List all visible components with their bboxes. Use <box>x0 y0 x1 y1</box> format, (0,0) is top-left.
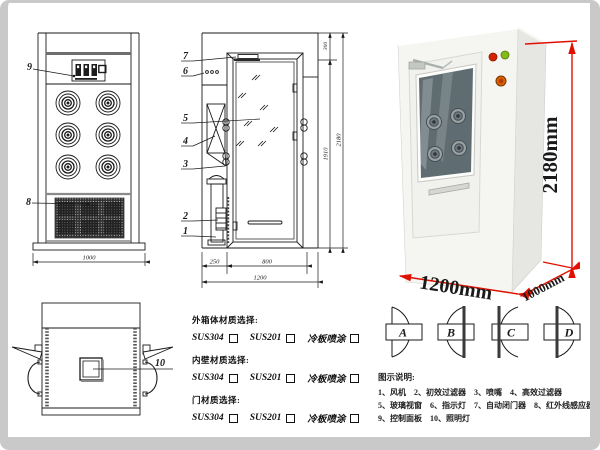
callout-7-label: 7 <box>183 51 189 62</box>
front-view-drawing: 1000 9 8 <box>22 26 177 276</box>
checkbox[interactable] <box>286 334 295 343</box>
parts-legend-title: 图示说明: <box>378 371 590 383</box>
legend-item: 5、玻璃视窗 <box>378 399 422 412</box>
material-option-label: SUS304 <box>192 413 224 423</box>
door-config-legend: A B C D <box>382 303 582 361</box>
indicator-light-red <box>489 53 497 61</box>
glass-hatching <box>236 75 278 146</box>
product-photo: 2180mm 1200mm 1000mm <box>385 10 580 302</box>
ceiling-lamp <box>80 358 104 381</box>
callout-2-label: 2 <box>182 211 188 222</box>
material-option-label: SUS304 <box>192 333 224 343</box>
door-assembly <box>227 53 303 248</box>
door-config-label: D <box>564 326 574 340</box>
legend-item: 7、自动闭门器 <box>474 399 526 412</box>
dim-1200-label: 1200 <box>254 275 268 282</box>
dim-2180-label: 2180 <box>336 133 343 147</box>
door-config-c: C <box>486 303 530 361</box>
legend-item: 9、控制面板 <box>378 412 422 425</box>
checkbox[interactable] <box>286 374 295 383</box>
fan-unit <box>207 176 228 246</box>
door-config-label: B <box>446 326 455 340</box>
nozzle-icon <box>56 123 80 147</box>
material-option-label: 冷板喷涂 <box>307 411 345 425</box>
nozzle-icon <box>96 123 120 147</box>
nozzle-icon <box>96 91 120 115</box>
left-handle <box>12 345 42 396</box>
legend-item: 4、高效过滤器 <box>510 386 562 399</box>
top-view-drawing: 10 <box>5 295 180 435</box>
top-trim-bar <box>46 52 131 55</box>
callout-8-label: 8 <box>26 197 31 208</box>
material-group-door: 门材质选择: SUS304 SUS201 冷板喷涂 <box>192 394 364 425</box>
checkbox[interactable] <box>350 334 359 343</box>
dim-300-label: 300 <box>323 42 329 52</box>
material-option-label: SUS201 <box>250 373 282 383</box>
checkbox[interactable] <box>229 374 238 383</box>
nozzle-icon <box>56 91 80 115</box>
dim-1910-label: 1910 <box>323 147 330 161</box>
material-group-title: 门材质选择: <box>192 394 364 406</box>
checkbox[interactable] <box>229 334 238 343</box>
side-view-drawing: 7 6 5 4 3 2 1 300 1910 2180 250 800 1200 <box>180 26 355 291</box>
callout-1-label: 1 <box>183 226 188 237</box>
material-group-inner-wall: 内壁材质选择: SUS304 SUS201 冷板喷涂 <box>192 354 364 385</box>
door-closer-icon <box>238 55 258 59</box>
nozzle-icon <box>96 155 120 179</box>
checkbox[interactable] <box>350 374 359 383</box>
nozzle-icon <box>56 155 80 179</box>
material-option-label: SUS201 <box>250 333 282 343</box>
dimension-widths <box>202 252 318 288</box>
door-config-d: D <box>538 303 582 361</box>
material-option-label: SUS304 <box>192 373 224 383</box>
indicator-light-green <box>501 51 509 59</box>
dim-800-label: 800 <box>262 259 273 266</box>
checkbox[interactable] <box>350 414 359 423</box>
checkbox[interactable] <box>229 414 238 423</box>
legend-item: 8、红外线感应器 <box>534 399 594 412</box>
parts-legend: 图示说明: 1、风机 2、初效过滤器 3、喷嘴 4、高效过滤器 5、玻璃视窗 6… <box>378 371 590 425</box>
callout-9-label: 9 <box>27 62 32 73</box>
door-config-b: B <box>434 303 478 361</box>
material-option-label: SUS201 <box>250 413 282 423</box>
legend-item: 10、照明灯 <box>430 412 470 425</box>
callout-5-label: 5 <box>183 113 188 124</box>
callout-3-label: 3 <box>182 159 188 170</box>
return-air-grille <box>55 198 124 238</box>
door-handle-icon <box>248 221 282 224</box>
checkbox[interactable] <box>286 414 295 423</box>
material-options: 外箱体材质选择: SUS304 SUS201 冷板喷涂 内壁材质选择: SUS3… <box>192 314 364 434</box>
door-config-label: A <box>398 326 407 340</box>
legend-item: 2、初效过滤器 <box>414 386 466 399</box>
material-group-title: 内壁材质选择: <box>192 354 364 366</box>
material-group-title: 外箱体材质选择: <box>192 314 364 326</box>
right-handle <box>143 345 173 396</box>
legend-item: 3、喷嘴 <box>474 386 502 399</box>
base-plinth <box>33 243 145 250</box>
photo-height-dim-label: 2180mm <box>538 116 562 193</box>
legend-item: 6、指示灯 <box>430 399 466 412</box>
dimension-heights <box>318 33 348 248</box>
nozzle-array <box>56 91 120 179</box>
callout-10-label: 10 <box>155 358 165 369</box>
legend-item: 1、风机 <box>378 386 406 399</box>
callout-6-label: 6 <box>183 66 188 77</box>
material-option-label: 冷板喷涂 <box>307 371 345 385</box>
door-config-a: A <box>382 303 426 361</box>
material-option-label: 冷板喷涂 <box>307 331 345 345</box>
control-panel <box>72 60 106 81</box>
material-group-outer-box: 外箱体材质选择: SUS304 SUS201 冷板喷涂 <box>192 314 364 345</box>
front-width-dim-label: 1000 <box>83 255 97 262</box>
spec-sheet: 1000 9 8 <box>0 0 600 450</box>
dim-250-label: 250 <box>210 259 221 266</box>
door-config-label: C <box>507 326 516 340</box>
callout-4-label: 4 <box>182 136 188 147</box>
